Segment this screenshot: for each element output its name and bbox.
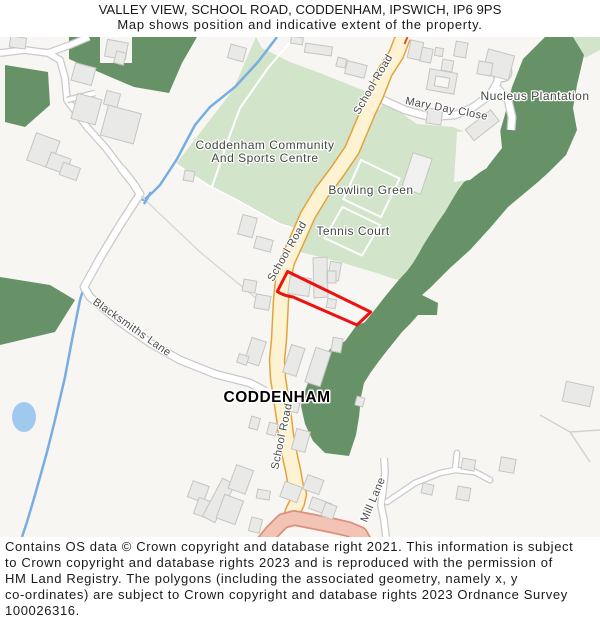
svg-text:Bowling Green: Bowling Green (328, 183, 413, 197)
svg-text:Tennis Court: Tennis Court (316, 224, 390, 238)
svg-text:CODDENHAM: CODDENHAM (224, 389, 331, 406)
svg-text:Nucleus Plantation: Nucleus Plantation (480, 89, 589, 103)
svg-text:And Sports Centre: And Sports Centre (211, 151, 318, 165)
svg-text:Coddenham Community: Coddenham Community (196, 138, 335, 152)
